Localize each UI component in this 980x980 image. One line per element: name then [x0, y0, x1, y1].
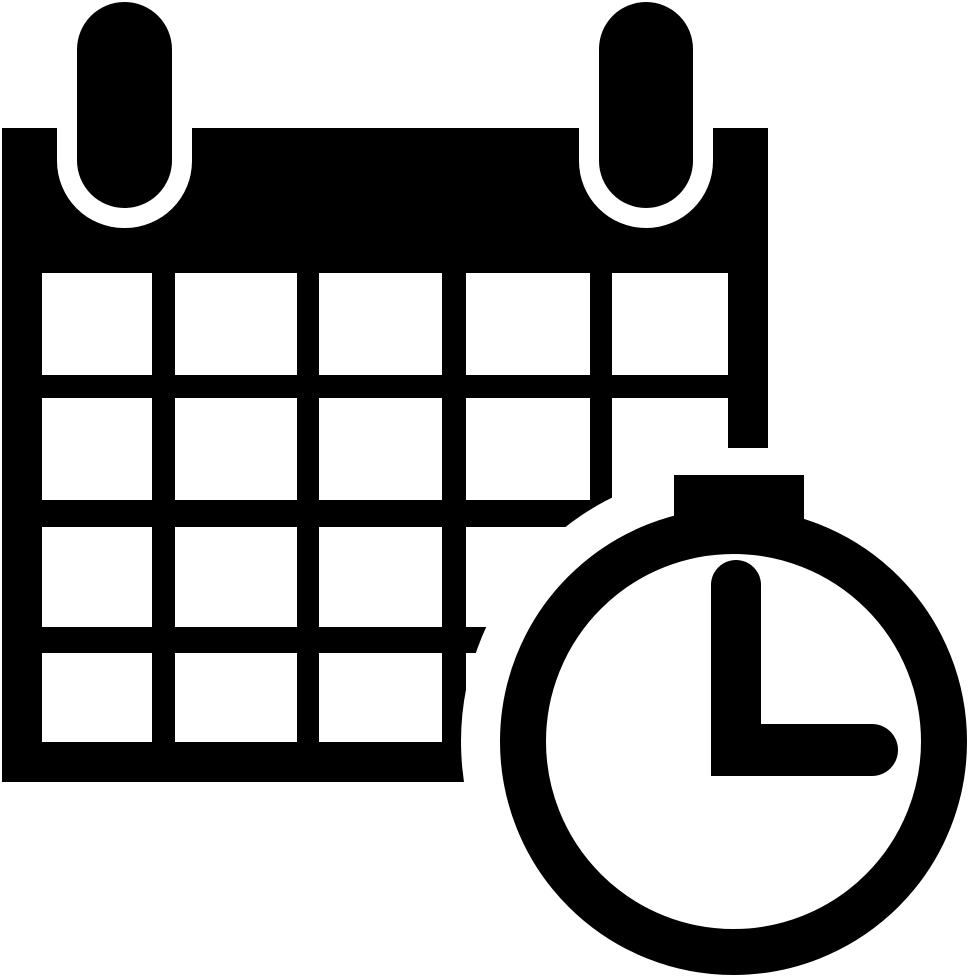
calendar-cell	[319, 527, 442, 627]
calendar-cell	[42, 653, 152, 742]
calendar-cell	[175, 527, 297, 627]
binding-ring-left	[77, 2, 172, 208]
calendar-cell	[175, 653, 297, 742]
calendar-clock-icon: Calendar with clock	[0, 0, 980, 980]
calendar-cell	[319, 653, 442, 742]
calendar-cell	[42, 398, 152, 500]
calendar-cell	[42, 273, 152, 375]
calendar-cell	[466, 398, 590, 500]
calendar-cell	[175, 398, 297, 500]
binding-ring-right	[599, 2, 693, 208]
clock-hour-hand	[711, 724, 898, 776]
calendar-cell	[612, 273, 728, 375]
calendar-cell	[319, 273, 442, 375]
calendar-cell	[175, 273, 297, 375]
calendar-cell	[42, 527, 152, 627]
calendar-cell	[319, 398, 442, 500]
calendar-cell	[466, 273, 590, 375]
icon-title: Calendar with clock	[0, 0, 1, 1]
